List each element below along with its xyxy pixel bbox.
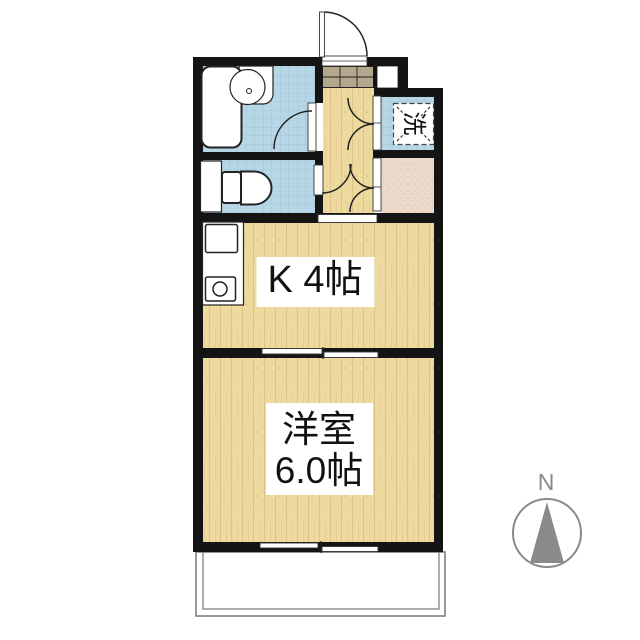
western-room-name-label: 洋室 <box>282 409 356 450</box>
floor-plan-page: 洗 K 4帖 洋室 6.0帖 N <box>0 0 640 640</box>
kitchen-label: K 4帖 <box>267 259 362 301</box>
wall-laundry-top <box>374 88 443 97</box>
laundry-label: 洗 <box>400 112 427 136</box>
compass: N <box>513 469 581 567</box>
toilet-bowl <box>241 172 272 205</box>
toilet-door-leaf <box>314 165 323 195</box>
wall-genkan-divider <box>373 66 377 88</box>
bathroom-sink <box>230 70 265 105</box>
storage-room-floor <box>381 158 434 213</box>
entrance-door-leaf <box>320 12 325 57</box>
kitchen-stove <box>206 277 236 301</box>
entrance-door-arc <box>325 12 368 56</box>
kitchen-sink <box>206 225 238 253</box>
balcony <box>196 552 445 616</box>
toilet-tank <box>222 172 241 203</box>
wall-laundry-storage <box>373 150 434 158</box>
wall-right-upper <box>434 88 443 215</box>
bathroom-door-leaf <box>308 103 316 151</box>
wall-bath-hall-b <box>315 151 323 165</box>
genkan-tiles <box>323 66 373 88</box>
wall-right-main <box>434 213 443 552</box>
wall-bath-hall-c <box>315 195 323 214</box>
hall-kitchen-threshold <box>318 215 377 223</box>
wall-top-stub <box>398 57 408 88</box>
compass-north-label: N <box>538 469 555 495</box>
western-room-size-label: 6.0帖 <box>275 450 363 491</box>
shoe-cabinet <box>377 66 398 88</box>
storage-door-leaves <box>373 158 381 211</box>
toilet-vanity <box>201 161 222 212</box>
floor-plan-svg: 洗 K 4帖 洋室 6.0帖 N <box>0 0 640 640</box>
wall-bath-toilet <box>203 152 315 160</box>
wall-bath-hall-a <box>315 66 323 103</box>
laundry-machine-space: 洗 <box>394 104 434 145</box>
wall-top-left <box>193 57 322 66</box>
compass-needle-icon <box>530 502 564 563</box>
hallway-floor <box>323 88 374 214</box>
